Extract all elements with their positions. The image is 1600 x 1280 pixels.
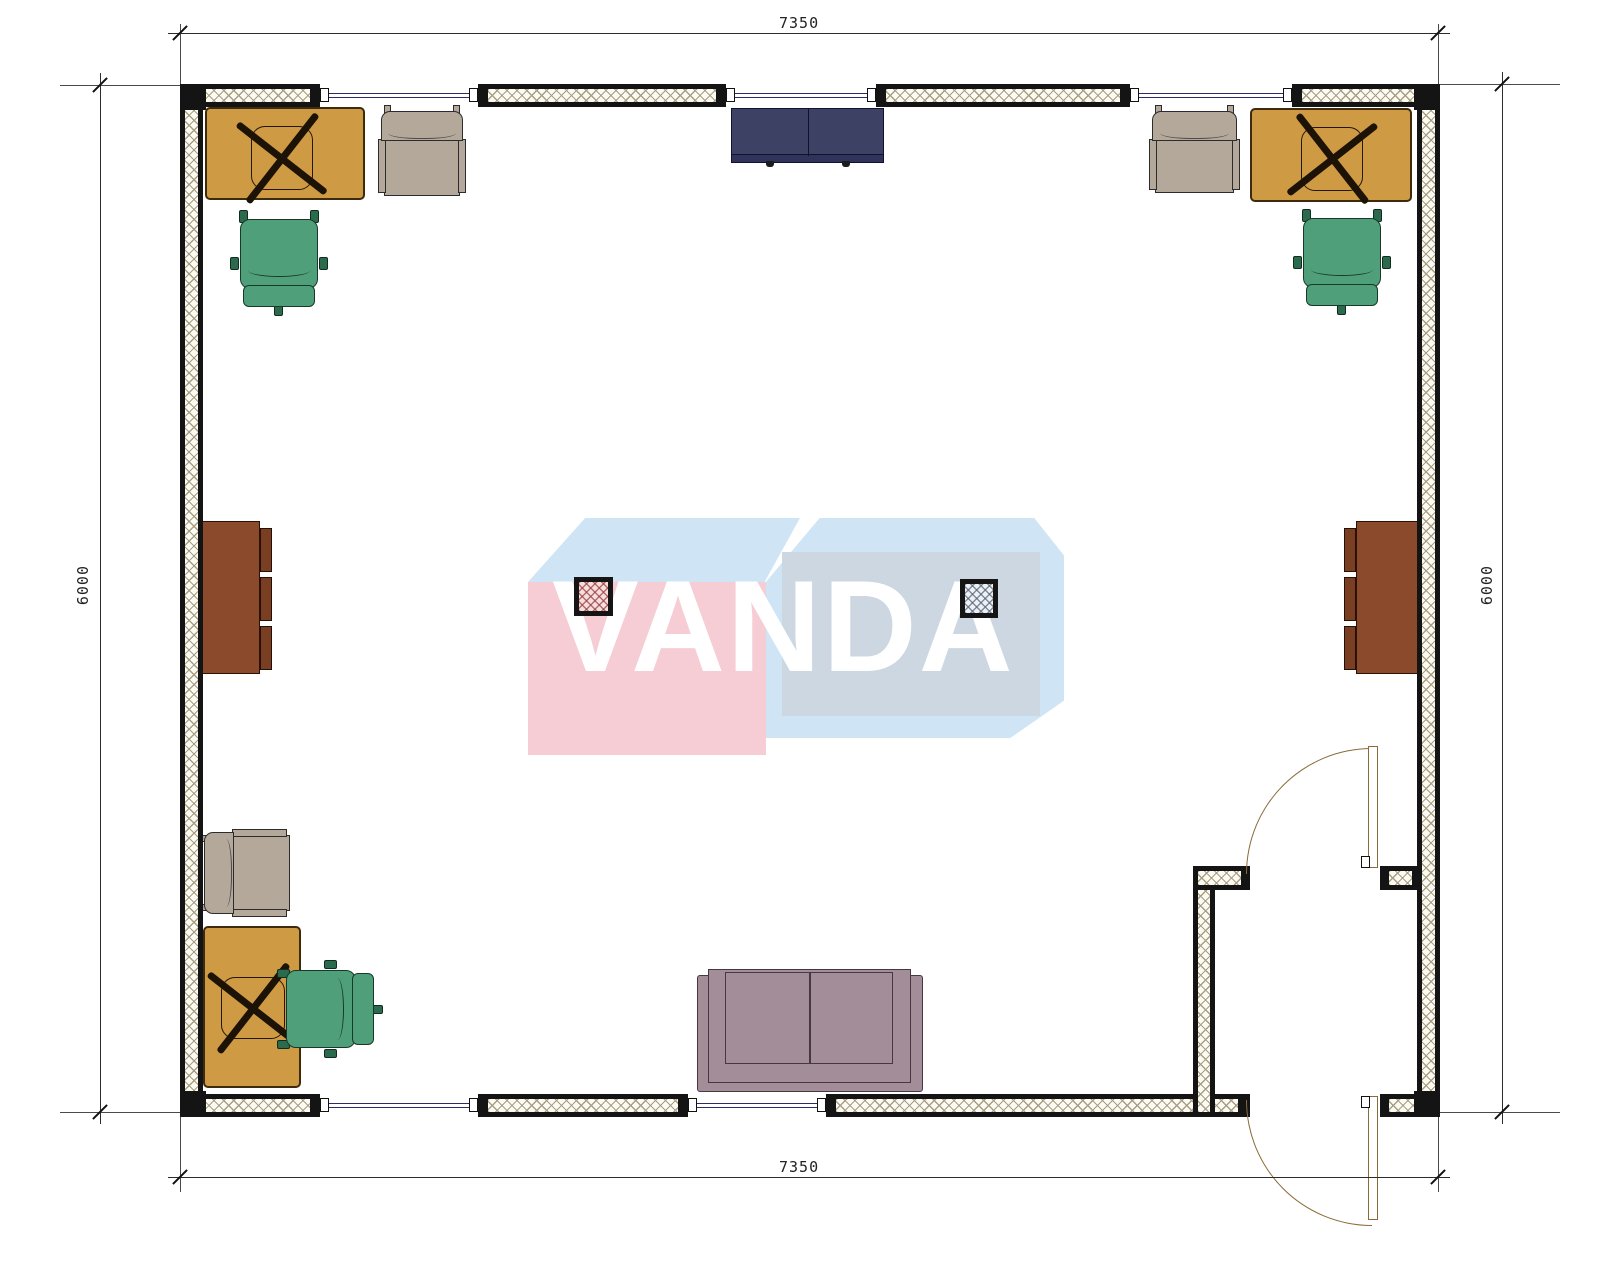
window-top-2	[726, 93, 876, 98]
chair-foot	[324, 1049, 337, 1058]
cabinet-navy-top	[731, 108, 884, 163]
chair-back-line	[1160, 126, 1230, 139]
cabinet-brown-right	[1356, 521, 1418, 674]
dimension-label-right: 6000	[1478, 562, 1496, 608]
window-frame-end	[726, 88, 735, 102]
guest-chair-top-right	[1152, 111, 1237, 193]
watermark-text: VANDA	[552, 560, 1015, 692]
partition-top-stub	[1193, 866, 1250, 890]
task-chair-top-left	[236, 213, 322, 309]
cabinet-door-panel	[1344, 528, 1356, 572]
sofa-cushions	[725, 972, 893, 1064]
dimension-line-bottom	[168, 1177, 1450, 1178]
cabinet-door-panel	[1344, 626, 1356, 670]
cabinet-knob	[842, 161, 850, 167]
wall-bottom-segment	[478, 1094, 688, 1117]
wall-top-segment	[478, 84, 726, 107]
cabinet-divider	[808, 109, 809, 156]
sofa-bottom-center	[697, 969, 923, 1092]
door-frame-end	[1361, 1096, 1370, 1108]
window-frame-end	[320, 1098, 329, 1112]
chair-arm	[1232, 139, 1240, 190]
cabinet-door-panel	[1344, 577, 1356, 621]
cross-bar	[245, 112, 319, 205]
chair-arm	[1149, 139, 1157, 190]
chair-foot	[1293, 256, 1302, 269]
chair-back	[1152, 111, 1237, 141]
door-leaf-inner	[1368, 746, 1378, 868]
dimension-label-bottom: 7350	[776, 1158, 822, 1176]
cabinet-door-panel	[260, 577, 272, 621]
wall-corner	[1414, 1091, 1440, 1117]
window-frame-end	[469, 88, 478, 102]
chair-back	[1306, 284, 1378, 306]
guest-chair-top-left	[381, 111, 463, 196]
chair-seat	[1303, 218, 1381, 288]
chair-seat	[240, 219, 318, 289]
floor-plan-canvas: VANDA	[0, 0, 1600, 1280]
chair-seat-line	[248, 264, 310, 277]
task-chair-top-right	[1299, 212, 1385, 308]
wall-corner	[1414, 84, 1440, 110]
window-frame-end	[867, 88, 876, 102]
task-chair-bottom-left	[280, 966, 376, 1052]
dimension-line-right	[1502, 72, 1503, 1124]
wall-bottom-segment	[826, 1094, 1250, 1117]
extension-line	[180, 1117, 181, 1192]
chair-back-line	[388, 126, 455, 139]
chair-foot	[324, 960, 337, 969]
chair-seat-line	[1311, 263, 1373, 276]
chair-back	[381, 111, 463, 141]
dimension-line-left	[100, 73, 101, 1124]
chair-foot	[1382, 256, 1391, 269]
window-frame-end	[688, 1098, 697, 1112]
window-bottom-1	[320, 1103, 478, 1108]
guest-chair-bottom-left	[204, 832, 290, 914]
chair-arm	[378, 139, 386, 193]
door-leaf-entry	[1368, 1096, 1378, 1220]
door-swing-arc-inner	[1246, 748, 1372, 874]
wall-top-segment	[876, 84, 1130, 107]
window-frame-end	[320, 88, 329, 102]
cabinet-door-panel	[260, 528, 272, 572]
door-swing-arc-entry	[1246, 1100, 1372, 1226]
window-top-3	[1130, 93, 1292, 98]
chair-seat-line	[331, 978, 344, 1040]
dimension-label-top: 7350	[776, 14, 822, 32]
chair-seat	[286, 970, 356, 1048]
wall-right	[1417, 84, 1440, 1117]
sofa-cushion-divider	[809, 973, 811, 1063]
chair-back	[243, 285, 315, 307]
dimension-label-left: 6000	[74, 562, 92, 608]
wall-left	[180, 84, 203, 1117]
column-center-left	[574, 577, 613, 616]
chair-foot	[319, 257, 328, 270]
extension-line	[60, 85, 180, 86]
door-frame-end	[1361, 856, 1370, 868]
extension-line	[60, 1112, 180, 1113]
wall-corner	[180, 1091, 206, 1117]
window-top-1	[320, 93, 478, 98]
column-center-right	[960, 579, 998, 618]
cabinet-knob	[766, 161, 774, 167]
cross-bar	[1295, 113, 1369, 206]
window-frame-end	[1283, 88, 1292, 102]
cabinet-door-panel	[260, 626, 272, 670]
window-frame-end	[817, 1098, 826, 1112]
extension-line	[1438, 1117, 1439, 1192]
wall-right-door-stub	[1380, 866, 1417, 890]
chair-arm	[232, 909, 287, 917]
chair-arm	[458, 139, 466, 193]
chair-foot	[230, 257, 239, 270]
chair-back	[352, 973, 374, 1045]
chair-arm	[232, 829, 287, 837]
cabinet-brown-left	[198, 521, 260, 674]
partition-spine	[1193, 888, 1215, 1117]
chair-back-line	[219, 839, 232, 906]
window-frame-end	[469, 1098, 478, 1112]
window-bottom-2	[688, 1103, 826, 1108]
window-frame-end	[1130, 88, 1139, 102]
chair-back	[204, 832, 234, 914]
dimension-line-top	[168, 33, 1450, 34]
wall-corner	[180, 84, 206, 110]
